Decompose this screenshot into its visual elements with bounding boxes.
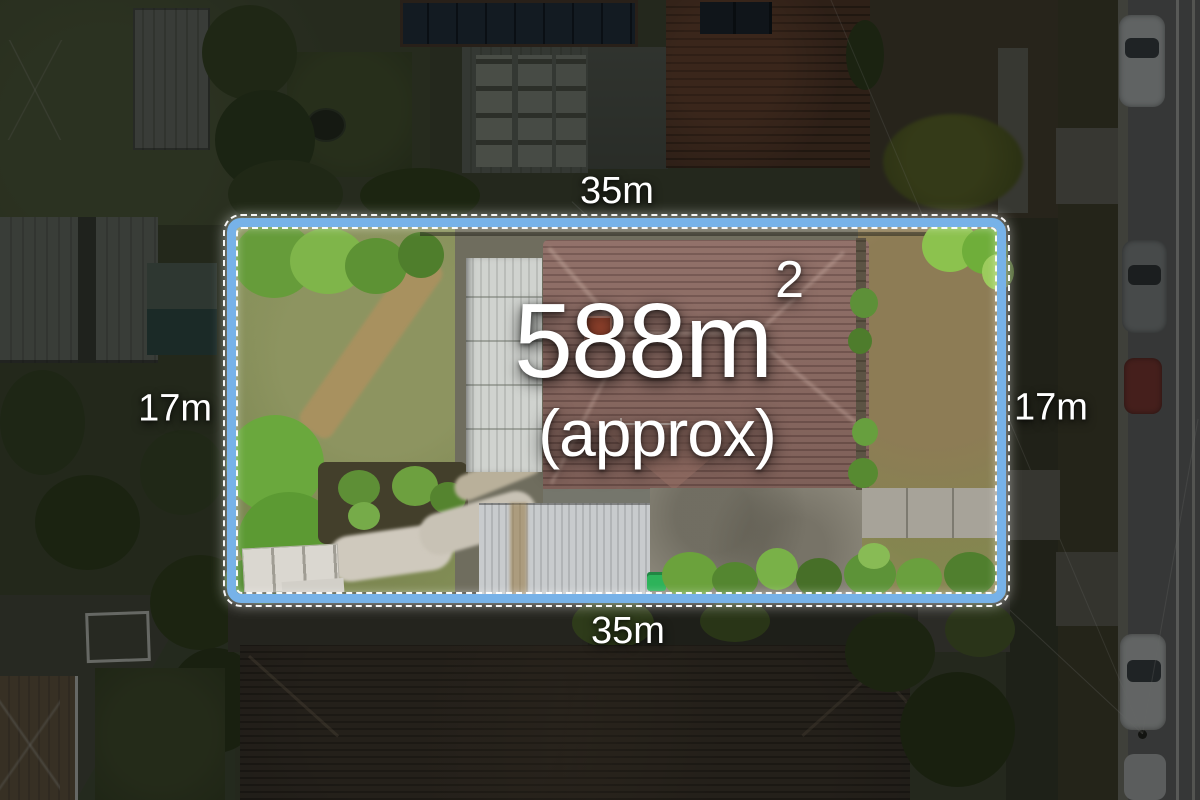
grey-roof-top bbox=[588, 47, 668, 169]
tree bbox=[140, 430, 225, 515]
lane-line bbox=[1176, 0, 1179, 800]
goal-frame bbox=[85, 611, 151, 663]
tree bbox=[945, 602, 1015, 657]
teal-shed-dark bbox=[147, 309, 217, 355]
driveway-crossover-bottom bbox=[1056, 552, 1122, 626]
parked-car-grey bbox=[1122, 240, 1167, 333]
bottom-width-label: 35m bbox=[591, 610, 665, 653]
lawn-bottom-left bbox=[95, 668, 225, 800]
parked-car-white bbox=[1120, 634, 1166, 730]
olive-tree bbox=[883, 114, 1023, 210]
car-windshield bbox=[1125, 38, 1159, 58]
teal-shed bbox=[147, 263, 217, 309]
area-label: 588m2 (approx) bbox=[514, 288, 800, 466]
right-depth-label: 17m bbox=[1014, 387, 1088, 430]
left-depth-label: 17m bbox=[138, 388, 212, 431]
tree bbox=[202, 5, 297, 100]
car-windshield bbox=[1127, 660, 1161, 682]
solar-panel-roof bbox=[400, 0, 638, 47]
clothesline-lines bbox=[0, 690, 60, 800]
neighbor-roof-bottom bbox=[240, 645, 910, 800]
clothesline-lines bbox=[0, 40, 70, 140]
tree bbox=[35, 475, 140, 570]
shed-gutter bbox=[78, 217, 96, 363]
area-approx: (approx) bbox=[514, 400, 800, 466]
garden-bottom-right-outside bbox=[1006, 600, 1066, 800]
terracotta-solar-pair bbox=[700, 2, 772, 34]
lane-line bbox=[1192, 0, 1195, 800]
concrete-pad-outside-right bbox=[1006, 470, 1060, 540]
car-windshield bbox=[1128, 265, 1161, 285]
tree bbox=[900, 672, 1015, 787]
aerial-photo-stage: 35m 35m 17m 17m 588m2 (approx) bbox=[0, 0, 1200, 800]
skylight-column bbox=[476, 55, 512, 167]
tree bbox=[845, 612, 935, 692]
top-width-label: 35m bbox=[580, 170, 654, 213]
driveway-crossover-top bbox=[1056, 128, 1122, 204]
area-superscript: 2 bbox=[775, 251, 804, 309]
skylight-column bbox=[518, 55, 552, 167]
parked-car-red bbox=[1124, 358, 1162, 414]
parked-car-white bbox=[1124, 754, 1166, 800]
parked-car-white bbox=[1119, 15, 1165, 107]
area-value: 588m2 bbox=[514, 288, 800, 394]
tree bbox=[0, 370, 85, 475]
skylight-column bbox=[556, 55, 586, 167]
shed-roof-top-left bbox=[133, 8, 210, 150]
